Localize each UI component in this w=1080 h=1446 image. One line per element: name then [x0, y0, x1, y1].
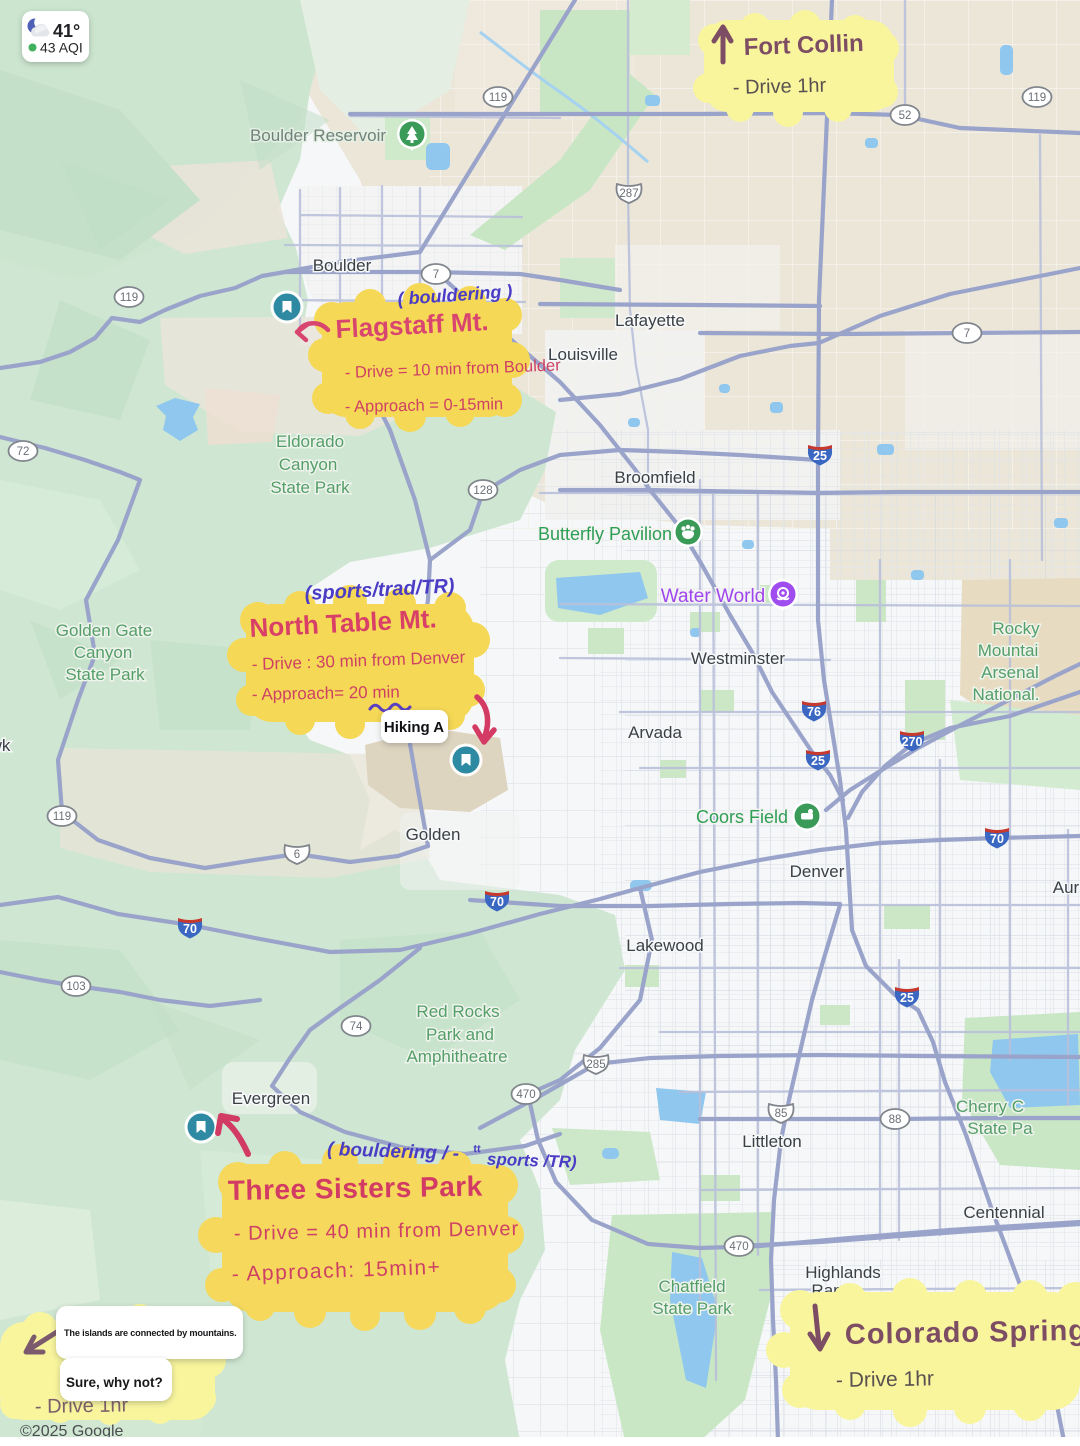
svg-text:72: 72 — [17, 446, 30, 458]
svg-text:Canyon: Canyon — [279, 455, 338, 474]
svg-text:76: 76 — [807, 705, 821, 719]
svg-text:41°: 41° — [53, 21, 80, 41]
svg-text:Littleton: Littleton — [742, 1132, 802, 1151]
svg-text:State Park: State Park — [270, 478, 350, 497]
svg-text:Highlands: Highlands — [805, 1263, 881, 1282]
svg-text:The islands are connected by m: The islands are connected by mountains. — [64, 1328, 236, 1338]
svg-text:Park and: Park and — [426, 1025, 494, 1044]
svg-text:Water World: Water World — [661, 586, 766, 607]
svg-text:Red Rocks: Red Rocks — [416, 1002, 499, 1021]
svg-text:119: 119 — [53, 811, 71, 823]
svg-text:7: 7 — [964, 328, 970, 340]
svg-text:Arsenal: Arsenal — [981, 663, 1039, 682]
svg-text:470: 470 — [516, 1089, 535, 1101]
svg-text:Lafayette: Lafayette — [615, 311, 685, 330]
svg-text:Fort Collin: Fort Collin — [743, 30, 864, 61]
svg-text:270: 270 — [902, 735, 923, 749]
svg-text:Three Sisters Park: Three Sisters Park — [228, 1171, 483, 1206]
svg-text:25: 25 — [813, 449, 827, 463]
svg-text:Centennial: Centennial — [963, 1203, 1044, 1222]
svg-text:Golden Gate: Golden Gate — [56, 621, 152, 640]
svg-text:128: 128 — [473, 485, 492, 497]
svg-text:- Approach= 20 min: - Approach= 20 min — [252, 682, 400, 704]
svg-text:25: 25 — [811, 754, 825, 768]
svg-text:Arvada: Arvada — [628, 723, 682, 742]
svg-text:Chatfield: Chatfield — [658, 1277, 725, 1296]
svg-text:470: 470 — [729, 1241, 748, 1253]
svg-text:119: 119 — [489, 92, 507, 104]
svg-text:287: 287 — [619, 188, 638, 200]
svg-text:- Approach = 0-15min: - Approach = 0-15min — [345, 395, 504, 416]
svg-text:Hiking A: Hiking A — [384, 719, 444, 736]
svg-text:Coors Field: Coors Field — [696, 807, 788, 827]
svg-text:Colorado Springs: Colorado Springs — [845, 1314, 1080, 1351]
svg-text:43 AQI: 43 AQI — [40, 40, 83, 56]
svg-text:National.: National. — [972, 685, 1039, 704]
svg-text:sports /TR): sports /TR) — [487, 1150, 578, 1172]
svg-text:119: 119 — [120, 292, 138, 304]
svg-text:Evergreen: Evergreen — [232, 1089, 310, 1108]
svg-text:285: 285 — [586, 1059, 605, 1071]
svg-text:70: 70 — [990, 832, 1004, 846]
svg-text:Cherry C: Cherry C — [956, 1097, 1024, 1116]
svg-text:Boulder: Boulder — [313, 256, 372, 275]
svg-text:Boulder Reservoir: Boulder Reservoir — [250, 126, 386, 145]
svg-text:- Drive 1hr: - Drive 1hr — [836, 1367, 934, 1392]
svg-text:tt: tt — [473, 1143, 481, 1155]
svg-text:Mountai: Mountai — [978, 641, 1038, 660]
svg-text:6: 6 — [294, 849, 300, 861]
svg-text:52: 52 — [899, 110, 912, 122]
svg-text:70: 70 — [490, 895, 504, 909]
svg-text:88: 88 — [889, 1114, 902, 1126]
svg-text:State Park: State Park — [652, 1299, 732, 1318]
svg-text:- Drive 1hr: - Drive 1hr — [733, 75, 827, 99]
svg-text:wk: wk — [0, 736, 11, 755]
svg-text:State Pa: State Pa — [967, 1119, 1033, 1138]
svg-text:Westminster: Westminster — [691, 649, 785, 668]
svg-text:Rocky: Rocky — [992, 619, 1040, 638]
svg-text:7: 7 — [433, 269, 439, 281]
svg-text:103: 103 — [66, 981, 85, 993]
svg-text:Canyon: Canyon — [74, 643, 133, 662]
svg-text:25: 25 — [900, 991, 914, 1005]
svg-text:Butterfly Pavilion: Butterfly Pavilion — [538, 524, 672, 544]
svg-text:Golden: Golden — [406, 825, 461, 844]
svg-text:Broomfield: Broomfield — [614, 468, 695, 487]
svg-text:Lakewood: Lakewood — [626, 936, 704, 955]
svg-text:State Park: State Park — [65, 665, 145, 684]
svg-text:119: 119 — [1028, 92, 1046, 104]
svg-text:Eldorado: Eldorado — [276, 432, 344, 451]
svg-text:74: 74 — [350, 1021, 363, 1033]
svg-text:Amphitheatre: Amphitheatre — [406, 1047, 507, 1066]
svg-text:85: 85 — [775, 1108, 788, 1120]
svg-text:Denver: Denver — [790, 862, 845, 881]
svg-text:70: 70 — [183, 922, 197, 936]
svg-text:Sure, why not?: Sure, why not? — [66, 1375, 163, 1390]
svg-text:Aur: Aur — [1053, 878, 1080, 897]
